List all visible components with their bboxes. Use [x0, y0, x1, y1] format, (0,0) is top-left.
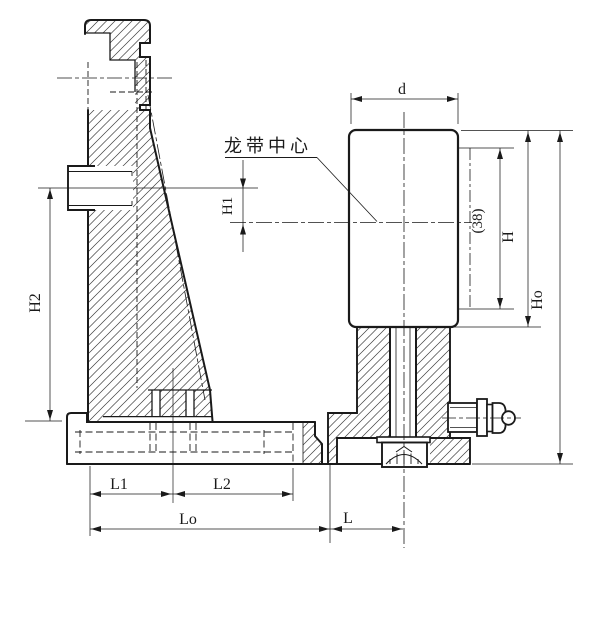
belt-center-label: 龙带中心: [224, 136, 312, 156]
dim-label-ho: Ho: [529, 290, 546, 310]
dim-label-lo: Lo: [179, 511, 197, 528]
pulley-support: [328, 327, 521, 467]
dim-label-l1: L1: [110, 476, 128, 493]
hidden-slot-lines: [75, 423, 293, 463]
bracket-section: [57, 20, 213, 421]
grease-fitting: [442, 399, 521, 436]
dim-label-l: L: [343, 510, 353, 527]
technical-drawing-page: d H1 H2 (38) H Ho L1 L2 Lo L 龙带中心: [0, 0, 600, 632]
dim-label-h: H: [500, 231, 517, 243]
crown-nut: [382, 443, 427, 468]
dim-label-d: d: [398, 81, 406, 98]
tension-pulley-bracket-drawing: d H1 H2 (38) H Ho L1 L2 Lo L 龙带中心: [0, 0, 600, 632]
dim-label-38: (38): [470, 209, 486, 234]
dim-label-h1: H1: [220, 197, 236, 215]
spindle-bolt: [390, 327, 416, 437]
dim-label-l2: L2: [213, 476, 231, 493]
pulley-cylinder: [349, 130, 458, 327]
dim-label-h2: H2: [27, 293, 44, 313]
